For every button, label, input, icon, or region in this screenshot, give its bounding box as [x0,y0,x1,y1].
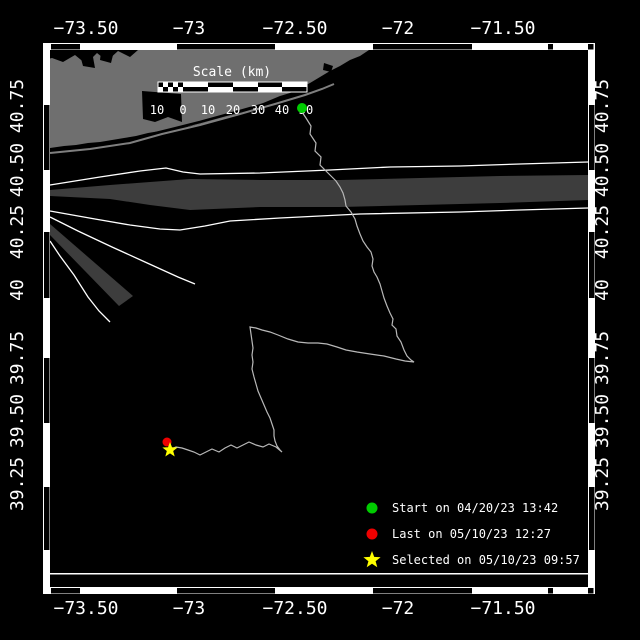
scale-checker-cell [158,87,163,92]
inner-frame-line [50,573,588,575]
scale-segment [282,87,307,92]
scale-checker-cell [173,82,178,87]
scale-tick-label: 0 [179,103,186,117]
glider-track-path[interactable] [171,112,414,455]
frame-zebra-segment [44,487,50,550]
y-axis-label-left: 40.50 [7,143,28,197]
glider-track-map: Scale (km)1001020304050−73.50−73.50−73−7… [0,0,640,640]
frame-zebra-segment [44,358,50,423]
y-axis-label-left: 40 [7,279,28,301]
y-axis-label-right: 39.75 [592,331,613,385]
frame-zebra-segment [51,588,80,594]
scale-checker-cell [178,87,183,92]
frame-band [43,587,595,594]
scale-checker-cell [178,82,183,87]
x-axis-label-top: −73 [173,18,206,39]
frame-zebra-segment [177,588,275,594]
legend-last-dot-icon [367,529,378,540]
scale-checker-cell [168,82,173,87]
frame-zebra-segment [373,588,472,594]
map-canvas: Scale (km)1001020304050−73.50−73.50−73−7… [0,0,640,640]
shipping-lanes-layer [50,162,588,322]
legend: Start on 04/20/23 13:42Last on 05/10/23 … [363,501,579,567]
scale-segment [208,87,233,92]
lane-boundary-lower [50,208,588,230]
traffic-separation-zone [50,175,588,210]
y-axis-label-left: 40.75 [7,79,28,133]
scale-tick-label: 10 [150,103,164,117]
y-axis-label-left: 40.25 [7,205,28,259]
scale-segment [183,82,208,87]
x-axis-label-bottom: −71.50 [470,598,535,619]
legend-selected-star-icon [363,551,380,567]
scale-tick-label: 30 [251,103,265,117]
frame-zebra-segment [548,44,553,50]
scale-segment [233,87,258,92]
frame-corner-square [588,44,594,50]
x-axis-label-bottom: −73 [173,598,206,619]
frame-zebra-segment [177,44,275,50]
scale-checker-cell [163,82,168,87]
scale-checker-cell [168,87,173,92]
y-axis-label-left: 39.50 [7,394,28,448]
y-axis-label-right: 40.75 [592,79,613,133]
frame-zebra-segment [44,105,50,170]
scale-segment [282,82,307,87]
scale-tick-label: 20 [226,103,240,117]
scale-bar-title: Scale (km) [193,65,271,80]
legend-start-dot-icon [367,503,378,514]
start-marker[interactable] [297,103,307,113]
land-layer [44,44,372,153]
y-axis-label-left: 39.25 [7,457,28,511]
y-axis-label-left: 39.75 [7,331,28,385]
scale-tick-label: 40 [275,103,289,117]
legend-item-label: Selected on 05/10/23 09:57 [392,553,580,567]
y-axis-label-right: 40 [592,279,613,301]
x-axis-label-top: −73.50 [53,18,118,39]
y-axis-label-right: 39.25 [592,457,613,511]
y-axis-label-right: 40.50 [592,143,613,197]
scale-checker-cell [163,87,168,92]
x-axis-label-top: −72.50 [262,18,327,39]
scale-segment [258,82,282,87]
scale-checker-cell [158,82,163,87]
scale-segment [258,87,282,92]
x-axis-label-bottom: −73.50 [53,598,118,619]
frame-zebra-segment [548,588,553,594]
x-axis-label-top: −72 [382,18,415,39]
scale-segment [208,82,233,87]
legend-item-label: Last on 05/10/23 12:27 [392,527,551,541]
frame-band [43,43,595,50]
scale-tick-label: 10 [201,103,215,117]
track-layer [162,103,414,457]
x-axis-label-top: −71.50 [470,18,535,39]
frame-zebra-segment [51,44,80,50]
frame-zebra-segment [373,44,472,50]
frame-zebra-segment [44,232,50,298]
scale-segment [233,82,258,87]
scale-checker-cell [173,87,178,92]
x-axis-label-bottom: −72.50 [262,598,327,619]
traffic-separation-wedge [50,224,133,306]
y-axis-label-right: 39.50 [592,394,613,448]
x-axis-label-bottom: −72 [382,598,415,619]
frame-corner-square [588,588,594,594]
legend-item-label: Start on 04/20/23 13:42 [392,501,558,515]
scale-segment [183,87,208,92]
y-axis-label-right: 40.25 [592,205,613,259]
